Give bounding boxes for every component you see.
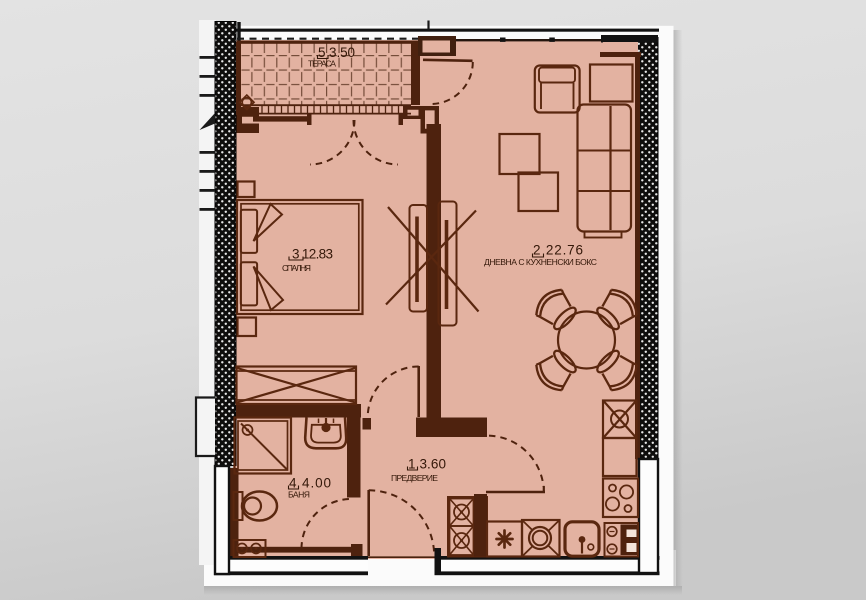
svg-text:ДНЕВНА С КУХНЕНСКИ БОКС: ДНЕВНА С КУХНЕНСКИ БОКС [484, 257, 597, 267]
svg-text:4 4.00: 4 4.00 [289, 476, 331, 491]
svg-text:ПРЕДВЕРИЕ: ПРЕДВЕРИЕ [391, 473, 438, 483]
svg-text:2 22.76: 2 22.76 [533, 243, 583, 258]
svg-text:3 12.83: 3 12.83 [292, 247, 333, 262]
svg-text:ТЕРАСА: ТЕРАСА [308, 59, 336, 69]
svg-text:1 3.60: 1 3.60 [408, 457, 446, 472]
svg-text:БАНЯ: БАНЯ [288, 490, 310, 500]
svg-text:СПАЛНЯ: СПАЛНЯ [282, 263, 311, 273]
